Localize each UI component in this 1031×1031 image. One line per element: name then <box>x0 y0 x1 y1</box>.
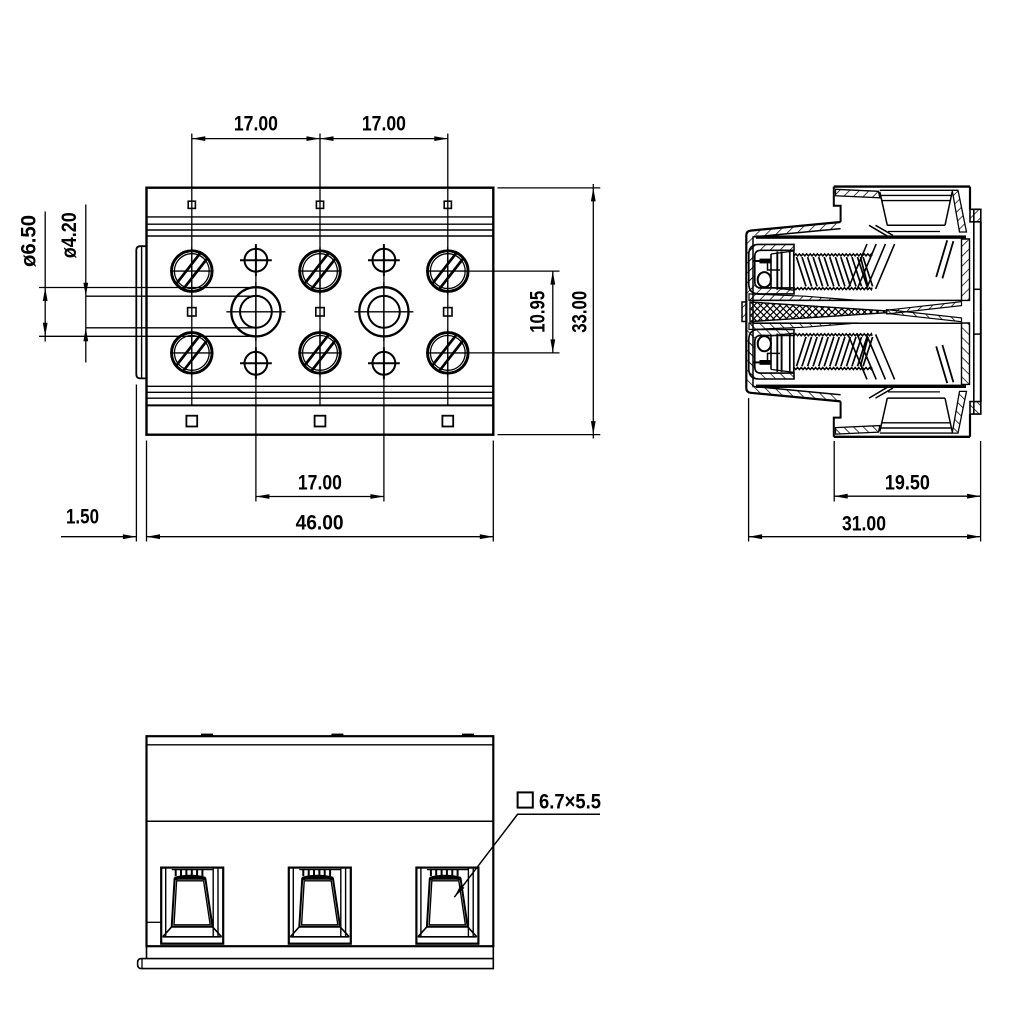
svg-text:ø4.20: ø4.20 <box>58 212 81 258</box>
svg-text:17.00: 17.00 <box>234 113 278 136</box>
svg-text:6.7×5.5: 6.7×5.5 <box>539 791 601 814</box>
svg-text:46.00: 46.00 <box>296 512 344 535</box>
svg-text:1.50: 1.50 <box>66 506 99 529</box>
svg-text:ø6.50: ø6.50 <box>17 215 40 267</box>
svg-text:17.00: 17.00 <box>298 471 342 494</box>
svg-text:19.50: 19.50 <box>885 472 930 495</box>
svg-text:33.00: 33.00 <box>568 291 591 333</box>
svg-text:31.00: 31.00 <box>842 513 886 536</box>
svg-text:10.95: 10.95 <box>527 291 550 333</box>
svg-text:17.00: 17.00 <box>362 113 406 136</box>
